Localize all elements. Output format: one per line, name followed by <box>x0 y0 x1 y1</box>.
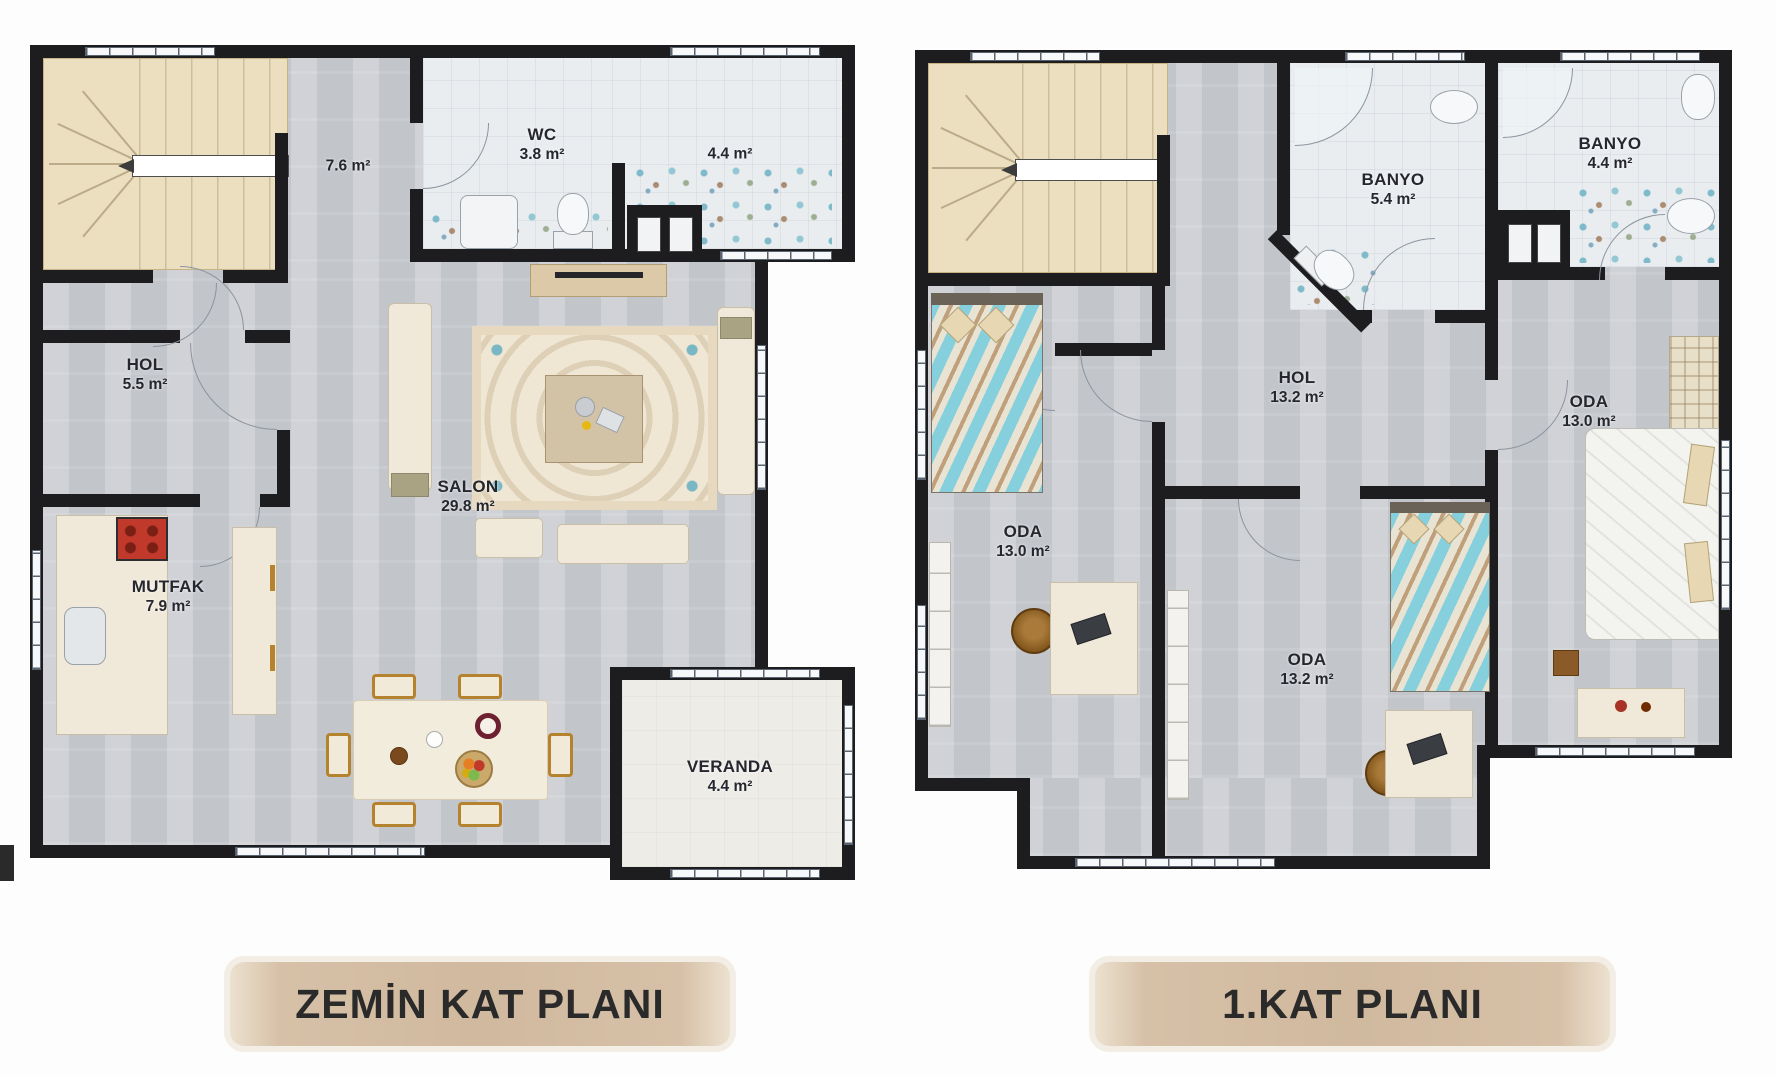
window <box>85 47 215 56</box>
window <box>1535 747 1695 756</box>
room-label-banyo-2: BANYO 4.4 m² <box>1579 134 1642 174</box>
dining-chair <box>326 733 351 777</box>
room-label-oda-left: ODA 13.0 m² <box>996 522 1049 562</box>
window <box>1560 52 1700 61</box>
wall <box>1665 267 1719 280</box>
ground-floor-plan: 7.6 m² WC 3.8 m² 4.4 m² HOL 5.5 m² SALON… <box>30 45 868 890</box>
window <box>1075 858 1275 867</box>
toilet <box>557 193 589 235</box>
shower-tray <box>460 195 518 249</box>
edge-artifact <box>0 845 14 881</box>
first-floor-plan: BANYO 5.4 m² BANYO 4.4 m² HOL 13.2 m² OD… <box>915 50 1745 880</box>
wall <box>1360 486 1490 499</box>
wall <box>410 58 423 123</box>
stair-winder <box>82 90 144 164</box>
wall <box>1719 50 1732 758</box>
wall <box>260 494 290 507</box>
window-pane <box>1537 224 1561 263</box>
first-floor-title-banner: 1.KAT PLANI <box>1095 962 1610 1046</box>
sofa-cushion <box>720 317 752 339</box>
dining-table <box>353 700 548 800</box>
tv <box>555 272 643 278</box>
window <box>670 669 820 678</box>
dining-chair <box>372 802 416 827</box>
plate <box>475 713 501 739</box>
kitchen-sink <box>64 607 106 665</box>
wall <box>1485 63 1498 323</box>
wall <box>1477 745 1490 869</box>
window <box>670 869 820 878</box>
cabinet-handle <box>270 645 275 671</box>
wall <box>842 45 855 262</box>
bathroom-sink <box>1667 198 1715 234</box>
kitchen-counter <box>232 527 277 715</box>
wall <box>610 667 622 880</box>
stair-handrail <box>132 155 289 177</box>
window <box>670 47 820 56</box>
tv-unit <box>530 264 667 297</box>
stove <box>116 517 168 561</box>
sofa <box>388 303 432 491</box>
staircase <box>43 58 288 270</box>
wall <box>245 330 290 343</box>
wall <box>928 273 1170 286</box>
bed-headboard <box>1390 502 1490 513</box>
wall <box>1157 135 1170 286</box>
window <box>1345 52 1465 61</box>
stair-handrail <box>1015 159 1169 181</box>
wall <box>1165 486 1300 499</box>
stair-handrail-tip <box>118 159 134 173</box>
wardrobe <box>1167 590 1189 800</box>
room-label-hol: HOL 13.2 m² <box>1270 368 1323 408</box>
room-label-hall: 7.6 m² <box>326 158 371 177</box>
wall <box>1355 310 1372 323</box>
sofa <box>475 518 543 558</box>
dining-chair <box>458 674 502 699</box>
vase <box>1641 702 1651 712</box>
window <box>235 847 425 856</box>
wall <box>223 270 288 283</box>
room-label-salon: SALON 29.8 m² <box>438 477 499 517</box>
room-label-veranda: VERANDA 4.4 m² <box>687 757 773 797</box>
wall <box>1485 323 1498 380</box>
wardrobe <box>1669 336 1719 434</box>
wall <box>1277 63 1290 235</box>
window-pane <box>637 217 661 252</box>
window <box>1721 440 1730 610</box>
room-label-wc: WC 3.8 m² <box>520 125 565 165</box>
sofa <box>557 524 689 564</box>
bathroom-sink <box>1430 90 1478 124</box>
nightstand <box>1553 650 1579 676</box>
room-label-terrace: 4.4 m² <box>708 146 753 165</box>
dresser <box>1577 688 1685 738</box>
stair-winder <box>965 94 1027 168</box>
room-label-banyo-1: BANYO 5.4 m² <box>1362 170 1425 210</box>
room-label-mutfak: MUTFAK 7.9 m² <box>132 577 205 617</box>
room-label-oda-right: ODA 13.0 m² <box>1562 392 1615 432</box>
cup <box>390 747 408 765</box>
window <box>917 350 926 480</box>
dining-chair <box>458 802 502 827</box>
wall <box>612 163 625 249</box>
room-label-oda-middle: ODA 13.2 m² <box>1280 650 1333 690</box>
window <box>757 345 766 490</box>
decor <box>582 421 591 430</box>
window <box>844 705 853 845</box>
dining-chair <box>372 674 416 699</box>
bed-headboard <box>931 293 1043 305</box>
wall <box>1152 286 1165 350</box>
window <box>32 550 41 670</box>
decor <box>575 397 595 417</box>
fruit-bowl <box>455 750 493 788</box>
window <box>970 52 1100 61</box>
staircase <box>928 63 1168 273</box>
vase <box>1615 700 1627 712</box>
wall <box>275 133 288 270</box>
plate <box>426 731 443 748</box>
wall <box>410 189 423 249</box>
wall <box>30 45 43 858</box>
wall <box>915 778 1030 791</box>
wall <box>43 494 200 507</box>
room-label-hol: HOL 5.5 m² <box>123 355 168 395</box>
coffee-table <box>545 375 643 463</box>
first-floor-title: 1.KAT PLANI <box>1222 981 1483 1027</box>
window <box>720 251 832 260</box>
window-pane <box>1508 224 1532 263</box>
dining-chair <box>548 733 573 777</box>
wall <box>1152 422 1165 856</box>
window <box>917 605 926 720</box>
ground-floor-title: ZEMİN KAT PLANI <box>295 981 665 1027</box>
cabinet-handle <box>270 565 275 591</box>
ground-floor-title-banner: ZEMİN KAT PLANI <box>230 962 730 1046</box>
window-pane <box>669 217 693 252</box>
wardrobe <box>929 542 951 727</box>
wall <box>43 270 153 283</box>
toilet <box>1681 74 1715 120</box>
stair-handrail-tip <box>1001 163 1017 177</box>
sofa-cushion <box>391 473 429 497</box>
